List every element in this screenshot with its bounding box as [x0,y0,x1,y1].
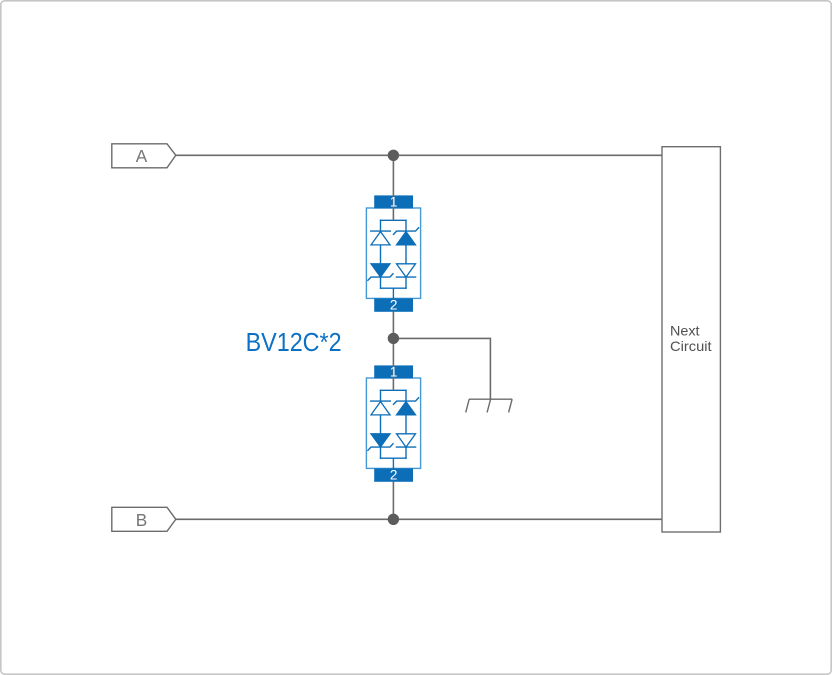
svg-text:1: 1 [390,194,398,209]
svg-text:Next: Next [670,323,700,339]
svg-text:Circuit: Circuit [670,338,712,354]
svg-text:1: 1 [390,364,398,379]
svg-text:2: 2 [390,298,398,313]
svg-text:B: B [136,510,147,530]
svg-text:A: A [136,146,148,166]
svg-text:2: 2 [390,468,398,483]
svg-text:BV12C*2: BV12C*2 [246,327,342,357]
